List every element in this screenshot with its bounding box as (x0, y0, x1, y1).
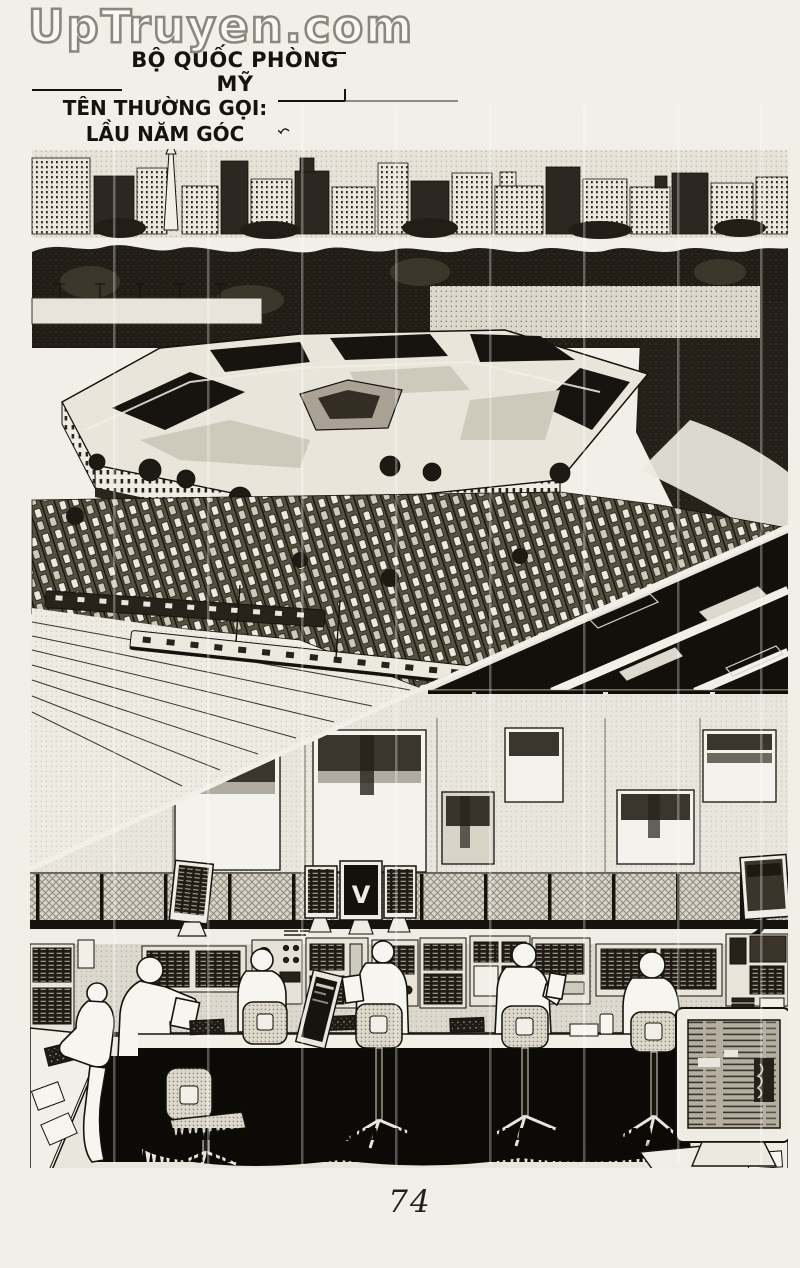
caption-common-name-value: LẦU NĂM GÓC (86, 121, 245, 147)
page-number: 74 (340, 1184, 480, 1220)
caption-common-name-label: TÊN THƯỜNG GỌI: (63, 95, 268, 121)
panel-artwork: V (0, 0, 800, 1268)
coffee-cup (600, 1014, 613, 1034)
center-monitor-glyph: V (352, 881, 371, 909)
site-watermark: UpTruyen.com (28, 0, 414, 53)
caption-defense-ministry: BỘ QUỐC PHÒNG MỸ (116, 54, 354, 89)
city-skyline (32, 142, 788, 239)
caption-common-name: TÊN THƯỜNG GỌI: LẦU NĂM GÓC (52, 93, 278, 149)
manga-page: UpTruyen.com BỘ QUỐC PHÒNG MỸ TÊN THƯỜNG… (0, 0, 800, 1268)
floor-shadow-edge (116, 1128, 708, 1162)
